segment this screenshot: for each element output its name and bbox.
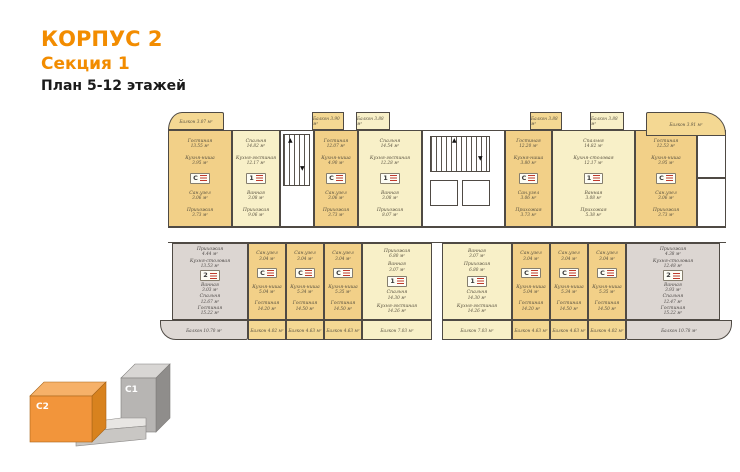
room-area: 6.80 м²	[464, 268, 490, 273]
service-room	[697, 178, 726, 227]
apartment-type-letter: С	[193, 175, 198, 182]
room-area: 12.47 м²	[663, 300, 684, 305]
apartment-area-table	[390, 175, 397, 181]
apartment-area-table	[210, 273, 217, 279]
room-area: 3.04 м²	[332, 257, 354, 262]
room-label: Сан.узел3.04 м²	[558, 251, 580, 261]
apartment-area-table	[673, 273, 680, 279]
room-area: 3.73 м²	[653, 213, 679, 218]
room-label: Сан.узел3.04 м²	[520, 251, 542, 261]
room-area: 3.08 м²	[381, 196, 399, 201]
room-area: 6.80 м²	[384, 254, 410, 259]
room-label: Сан.узел3.04 м²	[294, 251, 316, 261]
room-label: Кухня-ниша5.34 м²	[290, 285, 320, 295]
room-area: 3.07 м²	[468, 254, 486, 259]
stairs-hatch	[430, 136, 490, 172]
room-label: Кухня-ниша3.95 м²	[651, 156, 681, 166]
key-plan: C1 C2	[24, 356, 179, 461]
apartment-type-letter: С	[600, 270, 605, 277]
key-plan-c1-label: C1	[125, 385, 138, 395]
room-label: Кухня-ниша5.34 м²	[554, 285, 584, 295]
room-area: 3.03 м²	[201, 288, 219, 293]
room-area: 3.80 м²	[514, 161, 544, 166]
room-label: Сан.узел3.04 м²	[332, 251, 354, 261]
apartment-type-letter: С	[260, 270, 265, 277]
room-label: Кухня-ниша5.35 м²	[592, 285, 622, 295]
room-label: Гостиная14.50 м²	[331, 301, 356, 311]
room-label: Кухня-гостиная14.26 м²	[377, 304, 417, 314]
room-area: 12.53 м²	[654, 144, 679, 149]
apartment-type-letter: 1	[587, 175, 592, 182]
room-label: Прихожая8.07 м²	[377, 208, 403, 218]
room-area: 14.20 м²	[519, 307, 544, 312]
apartment-unit-s5[interactable]: Сан.узел3.04 м²СКухня-ниша5.34 м²Гостина…	[550, 243, 588, 320]
apartment-area-table	[267, 270, 274, 276]
apartment-type-letter: С	[562, 270, 567, 277]
apartment-unit-s4[interactable]: Сан.узел3.04 м²СКухня-ниша5.04 м²Гостина…	[512, 243, 550, 320]
room-area: 12.48 м²	[653, 264, 693, 269]
room-area: 14.50 м²	[595, 307, 620, 312]
apartment-type-letter: С	[298, 270, 303, 277]
room-area: 3.06 м²	[325, 196, 347, 201]
apartment-type-badge: 1	[246, 173, 266, 184]
room-area: 5.35 м²	[592, 290, 622, 295]
room-label: Гостиная12.20 м²	[516, 139, 541, 149]
apartment-type-badge: 2	[663, 270, 683, 281]
room-area: 3.04 м²	[558, 257, 580, 262]
elevator-shaft[interactable]	[462, 180, 490, 206]
room-label: Кухня-ниша5.04 м²	[516, 285, 546, 295]
apartment-area-table	[593, 175, 600, 181]
apartment-type-badge: С	[519, 173, 539, 184]
room-label: Прихожая6.80 м²	[384, 249, 410, 259]
room-area: 3.08 м²	[247, 196, 265, 201]
room-label: Гостиная12.07 м²	[324, 139, 349, 149]
apartment-unit-o2[interactable]: Ванная3.07 м²Прихожая6.80 м²1Спальня14.3…	[442, 243, 512, 320]
apartment-type-badge: С	[559, 268, 579, 279]
apartment-unit-t3[interactable]: Гостиная12.07 м²Кухня-ниша4.90 м²ССан.уз…	[314, 130, 358, 227]
balcony: Балкон 3.07 м²	[168, 112, 224, 130]
apartment-unit-t7[interactable]: Гостиная12.53 м²Кухня-ниша3.95 м²ССан.уз…	[635, 130, 697, 227]
room-area: 3.73 м²	[187, 213, 213, 218]
balcony: Балкон 3.91 м²	[646, 112, 726, 136]
room-label: Сан.узел3.06 м²	[655, 191, 677, 201]
apartment-area-table	[528, 175, 535, 181]
room-area: 3.07 м²	[388, 268, 406, 273]
apartment-type-badge: С	[521, 268, 541, 279]
room-label: Ванная3.03 м²	[201, 283, 219, 293]
apartment-type-letter: С	[659, 175, 664, 182]
apartment-type-badge: С	[326, 173, 346, 184]
balcony: Балкон 4.63 м²	[550, 320, 588, 340]
room-label: Ванная3.93 м²	[664, 283, 682, 293]
apartment-area-table	[305, 270, 312, 276]
room-area: 14.20 м²	[255, 307, 280, 312]
room-area: 3.04 м²	[256, 257, 278, 262]
room-label: Ванная3.08 м²	[381, 191, 399, 201]
room-label: Гостиная14.50 м²	[293, 301, 318, 311]
room-area: 5.38 м²	[580, 213, 606, 218]
room-area: 3.06 м²	[189, 196, 211, 201]
room-area: 14.26 м²	[377, 309, 417, 314]
room-area: 3.04 м²	[596, 257, 618, 262]
floors-label: План 5-12 этажей	[41, 78, 186, 96]
balcony: Балкон 3.88 м²	[356, 112, 390, 130]
room-area: 5.04 м²	[252, 290, 282, 295]
apartment-area-table	[666, 175, 673, 181]
room-label: Ванная3.08 м²	[585, 191, 603, 201]
key-plan-c2-label: C2	[36, 402, 49, 412]
room-area: 5.34 м²	[290, 290, 320, 295]
room-area: 3.73 м²	[515, 213, 541, 218]
room-label: Прихожая4.44 м²	[197, 247, 223, 257]
room-label: Кухня-столовая12.17 м²	[573, 156, 613, 166]
room-label: Сан.узел3.06 м²	[325, 191, 347, 201]
key-plan-building-c2[interactable]: C2	[30, 382, 106, 442]
apartment-unit-t5[interactable]: Гостиная12.20 м²Кухня-ниша3.80 м²ССан.уз…	[505, 130, 552, 227]
balcony: Балкон 7.03 м²	[362, 320, 432, 340]
apartment-type-badge: 1	[584, 173, 604, 184]
apartment-area-table	[607, 270, 614, 276]
room-label: Гостиная15.22 м²	[198, 306, 223, 316]
building-title: КОРПУС 2	[41, 26, 186, 52]
room-area: 3.73 м²	[323, 213, 349, 218]
apartment-unit-t4[interactable]: Спальня14.54 м²Кухня-гостиная12.28 м²1Ва…	[358, 130, 422, 227]
room-label: Гостиная14.50 м²	[595, 301, 620, 311]
room-label: Сан.узел3.04 м²	[596, 251, 618, 261]
apartment-unit-s6[interactable]: Сан.узел3.04 м²СКухня-ниша5.35 м²Гостина…	[588, 243, 626, 320]
room-area: 12.17 м²	[573, 161, 613, 166]
apartment-unit-t1[interactable]: Гостиная13.55 м²Кухня-ниша3.95 м²ССан.уз…	[168, 130, 232, 227]
apartment-type-letter: С	[522, 175, 527, 182]
room-area: 3.06 м²	[518, 196, 540, 201]
room-area: 3.06 м²	[655, 196, 677, 201]
room-label: Гостиная14.50 м²	[557, 301, 582, 311]
apartment-area-table	[569, 270, 576, 276]
apartment-unit-g2[interactable]: Прихожая4.38 м²Кухня-столовая12.48 м²2Ва…	[626, 243, 720, 320]
apartment-type-letter: 2	[203, 272, 208, 279]
room-label: Сан.узел3.04 м²	[256, 251, 278, 261]
balcony: Балкон 10.78 м²	[626, 320, 732, 340]
apartment-type-badge: С	[597, 268, 617, 279]
apartment-unit-t6[interactable]: Спальня14.82 м²Кухня-столовая12.17 м²1Ва…	[552, 130, 635, 227]
room-label: Спальня12.47 м²	[663, 294, 684, 304]
room-label: Кухня-ниша3.80 м²	[514, 156, 544, 166]
room-label: Кухня-ниша4.90 м²	[321, 156, 351, 166]
balcony: Балкон 4.02 м²	[588, 320, 626, 340]
room-area: 12.07 м²	[324, 144, 349, 149]
apartment-type-badge: С	[295, 268, 315, 279]
room-label: Прихожая3.73 м²	[653, 208, 679, 218]
room-area: 15.22 м²	[198, 311, 223, 316]
stairs-direction-arrow-icon: ▲	[288, 138, 293, 144]
apartment-unit-t2[interactable]: Спальня14.82 м²Кухня-гостиная12.17 м²1Ва…	[232, 130, 280, 227]
apartment-type-badge: С	[333, 268, 353, 279]
room-area: 14.82 м²	[583, 144, 604, 149]
apartment-area-table	[336, 175, 343, 181]
room-label: Кухня-гостиная12.17 м²	[236, 156, 276, 166]
apartment-type-letter: 1	[390, 278, 395, 285]
apartment-type-badge: С	[190, 173, 210, 184]
room-label: Сан.узел3.06 м²	[189, 191, 211, 201]
balcony: Балкон 3.90 м²	[312, 112, 344, 130]
floor-plan: ▲▼▲▼Гостиная13.55 м²Кухня-ниша3.95 м²ССа…	[160, 110, 732, 344]
apartment-type-badge: 2	[200, 270, 220, 281]
room-label: Кухня-ниша5.35 м²	[328, 285, 358, 295]
apartment-type-badge: 1	[380, 173, 400, 184]
room-label: Кухня-гостиная12.28 м²	[370, 156, 410, 166]
apartment-unit-g1[interactable]: Прихожая4.44 м²Кухня-столовая13.53 м²2Ва…	[172, 243, 248, 320]
room-area: 14.50 м²	[293, 307, 318, 312]
room-area: 5.04 м²	[516, 290, 546, 295]
room-label: Сан.узел3.06 м²	[518, 191, 540, 201]
room-label: Спальня14.82 м²	[246, 139, 267, 149]
room-area: 14.26 м²	[457, 309, 497, 314]
room-label: Прихожая3.73 м²	[187, 208, 213, 218]
room-area: 15.22 м²	[661, 311, 686, 316]
room-area: 3.93 м²	[664, 288, 682, 293]
room-area: 3.04 м²	[520, 257, 542, 262]
room-label: Гостиная15.22 м²	[661, 306, 686, 316]
apartment-area-table	[343, 270, 350, 276]
room-area: 3.08 м²	[585, 196, 603, 201]
apartment-type-badge: С	[656, 173, 676, 184]
plan-header: КОРПУС 2 Секция 1 План 5-12 этажей	[41, 26, 186, 95]
stairs-direction-arrow-icon: ▼	[300, 166, 305, 172]
room-area: 3.95 м²	[651, 161, 681, 166]
apartment-type-letter: 1	[249, 175, 254, 182]
room-label: Прихожая6.80 м²	[464, 262, 490, 272]
room-label: Прихожая9.06 м²	[243, 208, 269, 218]
apartment-type-badge: 1	[387, 276, 407, 287]
balcony: Балкон 4.02 м²	[248, 320, 286, 340]
balcony: Балкон 4.63 м²	[286, 320, 324, 340]
apartment-type-letter: 1	[383, 175, 388, 182]
apartment-type-letter: 2	[666, 272, 671, 279]
balcony: Балкон 4.63 м²	[324, 320, 362, 340]
room-label: Спальня14.30 м²	[467, 290, 488, 300]
room-label: Гостиная14.20 м²	[255, 301, 280, 311]
room-label: Кухня-ниша3.95 м²	[185, 156, 215, 166]
room-area: 12.28 м²	[370, 161, 410, 166]
room-area: 8.07 м²	[377, 213, 403, 218]
room-label: Кухня-ниша5.04 м²	[252, 285, 282, 295]
apartment-area-table	[477, 278, 484, 284]
room-area: 3.95 м²	[185, 161, 215, 166]
stairs-direction-arrow-icon: ▲	[452, 138, 457, 144]
balcony: Балкон 10.70 м²	[160, 320, 248, 340]
apartment-area-table	[397, 278, 404, 284]
room-area: 4.90 м²	[321, 161, 351, 166]
room-label: Ванная3.08 м²	[247, 191, 265, 201]
room-area: 12.17 м²	[236, 161, 276, 166]
room-label: Кухня-столовая12.48 м²	[653, 259, 693, 269]
room-label: Гостиная13.55 м²	[188, 139, 213, 149]
page: { "header": { "building": "КОРПУС 2", "s…	[0, 0, 740, 472]
section-title: Секция 1	[41, 54, 186, 75]
room-area: 14.50 м²	[557, 307, 582, 312]
room-area: 3.04 м²	[294, 257, 316, 262]
room-area: 4.38 м²	[660, 252, 686, 257]
room-label: Гостиная14.20 м²	[519, 301, 544, 311]
room-label: Прихожая5.38 м²	[580, 208, 606, 218]
apartment-type-letter: С	[329, 175, 334, 182]
apartment-type-letter: 1	[470, 278, 475, 285]
room-area: 12.67 м²	[200, 300, 221, 305]
room-area: 13.55 м²	[188, 144, 213, 149]
apartment-type-letter: С	[336, 270, 341, 277]
apartment-unit-o1[interactable]: Прихожая6.80 м²Ванная3.07 м²1Спальня14.3…	[362, 243, 432, 320]
room-label: Гостиная12.53 м²	[654, 139, 679, 149]
elevator-shaft[interactable]	[430, 180, 458, 206]
room-label: Спальня12.67 м²	[200, 294, 221, 304]
apartment-type-badge: 1	[467, 276, 487, 287]
room-label: Спальня14.30 м²	[387, 290, 408, 300]
apartment-area-table	[200, 175, 207, 181]
balcony: Балкон 3.88 м²	[590, 112, 624, 130]
room-area: 14.50 м²	[331, 307, 356, 312]
apartment-unit-s2[interactable]: Сан.узел3.04 м²СКухня-ниша5.34 м²Гостина…	[286, 243, 324, 320]
room-label: Прихожая3.73 м²	[323, 208, 349, 218]
balcony: Балкон 3.88 м²	[530, 112, 562, 130]
room-area: 12.20 м²	[516, 144, 541, 149]
room-area: 5.34 м²	[554, 290, 584, 295]
room-area: 13.53 м²	[190, 264, 230, 269]
corridor	[168, 227, 726, 243]
apartment-unit-s3[interactable]: Сан.узел3.04 м²СКухня-ниша5.35 м²Гостина…	[324, 243, 362, 320]
room-label: Спальня14.82 м²	[583, 139, 604, 149]
room-area: 9.06 м²	[243, 213, 269, 218]
apartment-type-letter: С	[524, 270, 529, 277]
apartment-area-table	[256, 175, 263, 181]
room-label: Ванная3.07 м²	[388, 262, 406, 272]
room-area: 14.30 м²	[387, 296, 408, 301]
room-label: Кухня-гостиная14.26 м²	[457, 304, 497, 314]
room-label: Спальня14.54 м²	[380, 139, 401, 149]
balcony: Балкон 7.03 м²	[442, 320, 512, 340]
room-label: Ванная3.07 м²	[468, 249, 486, 259]
room-area: 14.82 м²	[246, 144, 267, 149]
apartment-unit-s1[interactable]: Сан.узел3.04 м²СКухня-ниша5.04 м²Гостина…	[248, 243, 286, 320]
room-area: 14.54 м²	[380, 144, 401, 149]
balcony: Балкон 4.63 м²	[512, 320, 550, 340]
room-label: Прихожая4.38 м²	[660, 247, 686, 257]
room-label: Кухня-столовая13.53 м²	[190, 259, 230, 269]
room-area: 5.35 м²	[328, 290, 358, 295]
stairs-direction-arrow-icon: ▼	[478, 156, 483, 162]
apartment-area-table	[531, 270, 538, 276]
room-area: 14.30 м²	[467, 296, 488, 301]
room-area: 4.44 м²	[197, 252, 223, 257]
room-label: Прихожая3.73 м²	[515, 208, 541, 218]
apartment-type-badge: С	[257, 268, 277, 279]
service-room	[697, 130, 726, 178]
